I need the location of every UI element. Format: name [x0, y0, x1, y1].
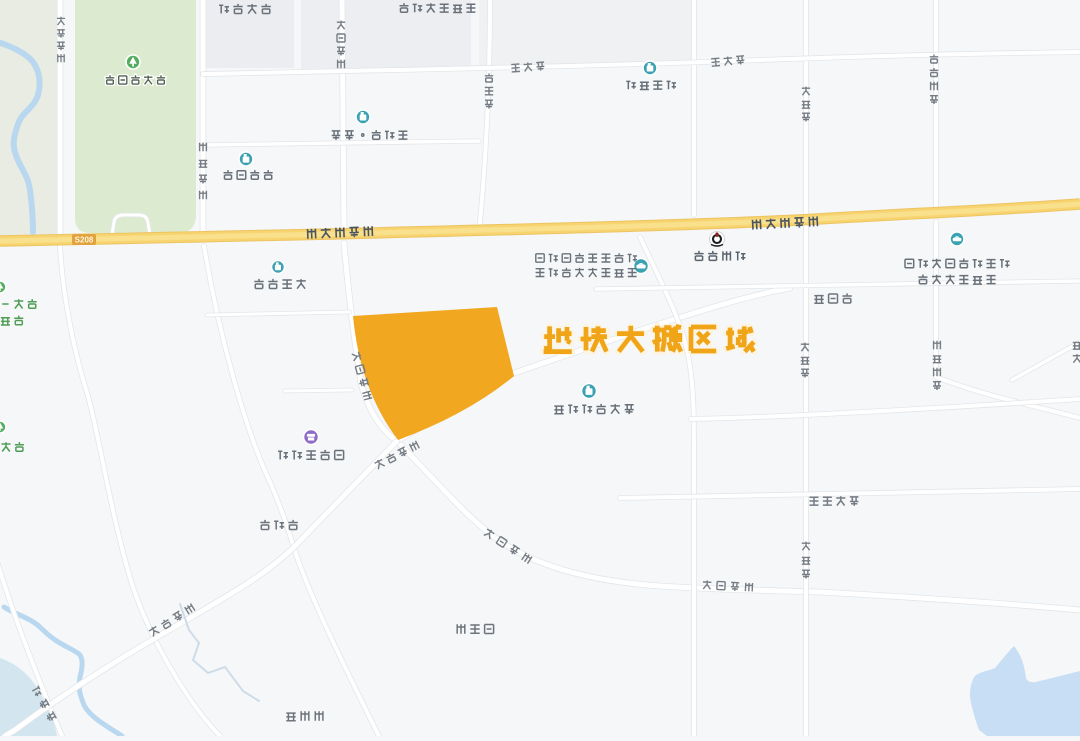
svg-text:S208: S208: [75, 236, 94, 245]
